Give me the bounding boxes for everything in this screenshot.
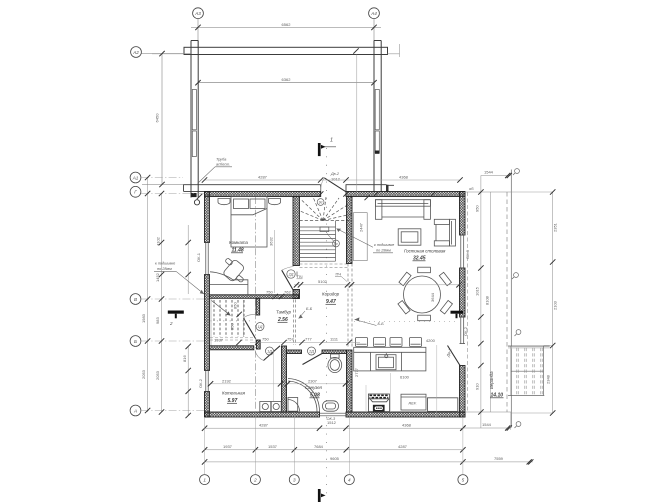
svg-text:2Д: 2Д xyxy=(308,350,314,354)
svg-text:2351: 2351 xyxy=(553,222,558,232)
svg-text:2Д: 2Д xyxy=(288,273,294,277)
svg-text:4368: 4368 xyxy=(399,175,409,180)
svg-text:750: 750 xyxy=(266,290,273,295)
svg-text:777: 777 xyxy=(305,337,312,342)
svg-text:1015: 1015 xyxy=(475,286,480,296)
svg-text:1937: 1937 xyxy=(223,444,233,449)
svg-text:ПЧ: ПЧ xyxy=(297,274,303,279)
svg-text:7559: 7559 xyxy=(494,456,504,461)
svg-text:по 28мм: по 28мм xyxy=(157,267,172,271)
svg-text:1: 1 xyxy=(203,478,206,483)
svg-text:1983: 1983 xyxy=(141,313,146,323)
svg-text:1: 1 xyxy=(330,138,333,144)
svg-text:2053: 2053 xyxy=(155,370,160,380)
svg-text:А3: А3 xyxy=(194,11,201,16)
svg-text:4200: 4200 xyxy=(426,338,436,343)
svg-text:Б-Б: Б-Б xyxy=(378,322,385,326)
svg-text:762: 762 xyxy=(284,290,291,295)
svg-text:Комната: Комната xyxy=(229,240,249,245)
svg-text:750: 750 xyxy=(262,337,269,342)
svg-text:4368: 4368 xyxy=(402,423,412,428)
svg-text:А1: А1 xyxy=(132,175,139,180)
svg-text:асбест.: асбест. xyxy=(216,163,230,167)
svg-text:В: В xyxy=(134,297,137,302)
svg-text:7684: 7684 xyxy=(314,444,324,449)
svg-text:6562: 6562 xyxy=(282,22,292,27)
svg-text:к подшивке: к подшивке xyxy=(155,262,175,266)
svg-text:2192: 2192 xyxy=(222,378,232,383)
svg-text:6362: 6362 xyxy=(282,77,292,82)
svg-text:816: 816 xyxy=(182,355,187,362)
svg-text:Коридор: Коридор xyxy=(322,292,340,297)
svg-text:9с: 9с xyxy=(319,201,323,205)
svg-text:по 28мм: по 28мм xyxy=(376,249,391,253)
svg-text:ОК-2: ОК-2 xyxy=(198,378,203,388)
svg-text:6с: 6с xyxy=(334,242,338,246)
svg-text:3632: 3632 xyxy=(269,236,274,246)
svg-text:2348: 2348 xyxy=(546,374,551,384)
svg-text:А: А xyxy=(133,408,137,413)
svg-text:1Д: 1Д xyxy=(267,350,272,354)
svg-text:Б: Б xyxy=(134,339,137,344)
svg-text:ОК-2: ОК-2 xyxy=(463,326,468,336)
svg-text:2103: 2103 xyxy=(553,300,558,310)
svg-text:к подшивке: к подшивке xyxy=(374,243,394,247)
svg-text:Гостиная столовая: Гостиная столовая xyxy=(404,249,446,254)
svg-text:2: 2 xyxy=(169,321,173,326)
svg-text:6450: 6450 xyxy=(155,113,160,123)
svg-text:4: 4 xyxy=(348,478,351,483)
svg-text:5: 5 xyxy=(462,478,465,483)
svg-text:ОК-1: ОК-1 xyxy=(196,252,201,262)
svg-text:Тамбур: Тамбур xyxy=(276,310,292,315)
svg-text:5102: 5102 xyxy=(318,279,328,284)
svg-text:4287: 4287 xyxy=(398,444,408,449)
svg-text:REF.: REF. xyxy=(409,402,417,406)
svg-text:ПЧ: ПЧ xyxy=(336,272,342,277)
svg-text:1012: 1012 xyxy=(331,177,341,182)
svg-text:Котельная: Котельная xyxy=(222,391,246,396)
svg-text:А2: А2 xyxy=(132,50,139,55)
svg-text:850: 850 xyxy=(233,302,238,309)
svg-text:3644: 3644 xyxy=(430,292,435,302)
svg-text:1537: 1537 xyxy=(268,444,278,449)
svg-text:Б-Б: Б-Б xyxy=(306,307,313,311)
svg-text:950: 950 xyxy=(475,205,480,212)
svg-text:Дв-2: Дв-2 xyxy=(330,172,340,176)
svg-text:1Д: 1Д xyxy=(258,325,263,329)
svg-text:1544: 1544 xyxy=(482,422,492,427)
svg-text:2777: 2777 xyxy=(354,367,359,377)
svg-text:2053: 2053 xyxy=(141,369,146,379)
svg-text:910: 910 xyxy=(475,383,480,390)
svg-text:Санузел: Санузел xyxy=(305,385,323,390)
svg-text:Труба: Труба xyxy=(216,158,226,162)
svg-text:757: 757 xyxy=(287,337,294,342)
svg-text:4287: 4287 xyxy=(259,423,269,428)
svg-text:983: 983 xyxy=(155,317,160,324)
svg-text:2: 2 xyxy=(253,478,257,483)
svg-text:1544: 1544 xyxy=(484,170,494,175)
svg-text:1111: 1111 xyxy=(330,337,339,342)
svg-text:6100: 6100 xyxy=(400,375,410,380)
svg-text:850: 850 xyxy=(230,323,235,330)
svg-text:1452: 1452 xyxy=(155,272,160,282)
svg-text:3: 3 xyxy=(293,478,296,483)
svg-text:8108: 8108 xyxy=(484,295,489,305)
svg-text:А4: А4 xyxy=(370,11,377,16)
svg-text:2447: 2447 xyxy=(359,222,364,232)
svg-text:ОК-3: ОК-3 xyxy=(327,417,336,421)
svg-text:9605: 9605 xyxy=(330,456,340,461)
svg-text:1937: 1937 xyxy=(214,338,224,343)
svg-text:4287: 4287 xyxy=(258,175,268,180)
svg-text:об: об xyxy=(469,186,474,191)
svg-text:Веранда: Веранда xyxy=(489,371,494,389)
svg-text:2307: 2307 xyxy=(308,378,318,383)
